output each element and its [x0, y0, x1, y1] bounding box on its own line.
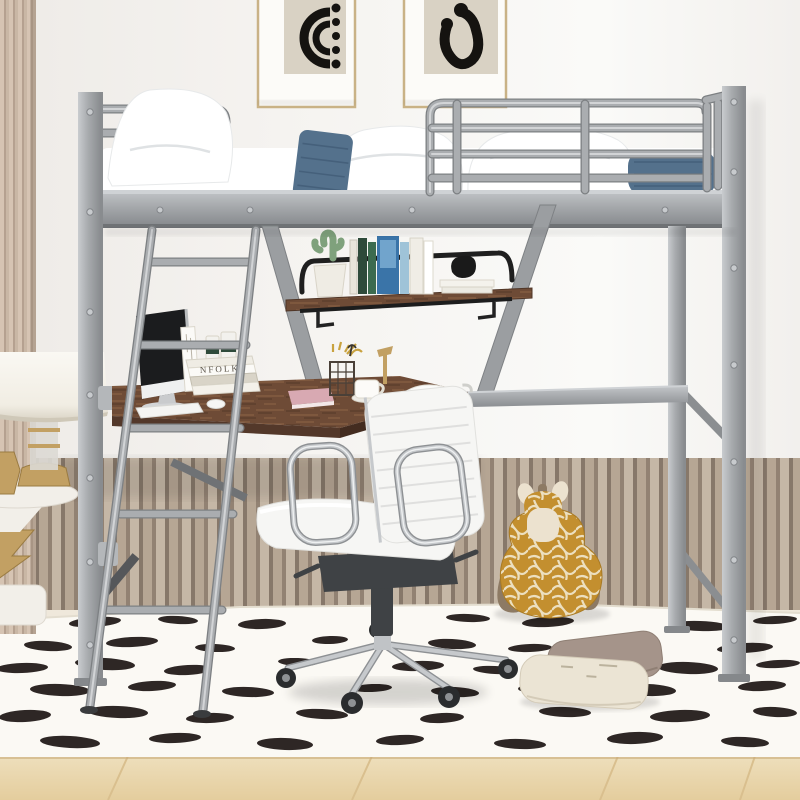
book-stack: NFOLK [186, 356, 260, 395]
wood-floor-surface [0, 756, 800, 800]
platform-top-edge [88, 190, 744, 194]
shelf-books [350, 236, 433, 294]
art-frame-ear [404, 0, 506, 107]
curtain-fold-shadow [30, 0, 36, 634]
ladder-foot-left [80, 706, 98, 714]
room-photo: NFOLK [0, 0, 800, 800]
marble-base [0, 585, 46, 625]
book-spine-text: NFOLK [200, 363, 240, 375]
art-frame-arcs [258, 0, 355, 107]
giraffe-muzzle [527, 508, 559, 542]
ladder-foot-right [193, 710, 211, 718]
lamp-gold-ring2 [28, 444, 60, 448]
mouse [207, 400, 225, 409]
frame-shadow [258, 100, 355, 105]
platform-face [88, 190, 744, 228]
scene-canvas: NFOLK [0, 0, 800, 800]
front-right-foot [718, 674, 750, 682]
bed-platform-rail [88, 190, 744, 228]
wood-floor [0, 756, 800, 800]
platform-bottom-edge [88, 224, 744, 228]
platform-wall-shadow [105, 228, 735, 236]
lamp-gold-ring [28, 428, 60, 432]
cream-pillow [518, 654, 649, 711]
gas-cylinder [371, 584, 393, 636]
cactus-pot [314, 264, 346, 297]
post-wall-shadow [748, 100, 764, 660]
rear-right-foot [664, 626, 690, 633]
lamp-glass-column [30, 414, 58, 470]
rear-right-leg [668, 226, 686, 630]
